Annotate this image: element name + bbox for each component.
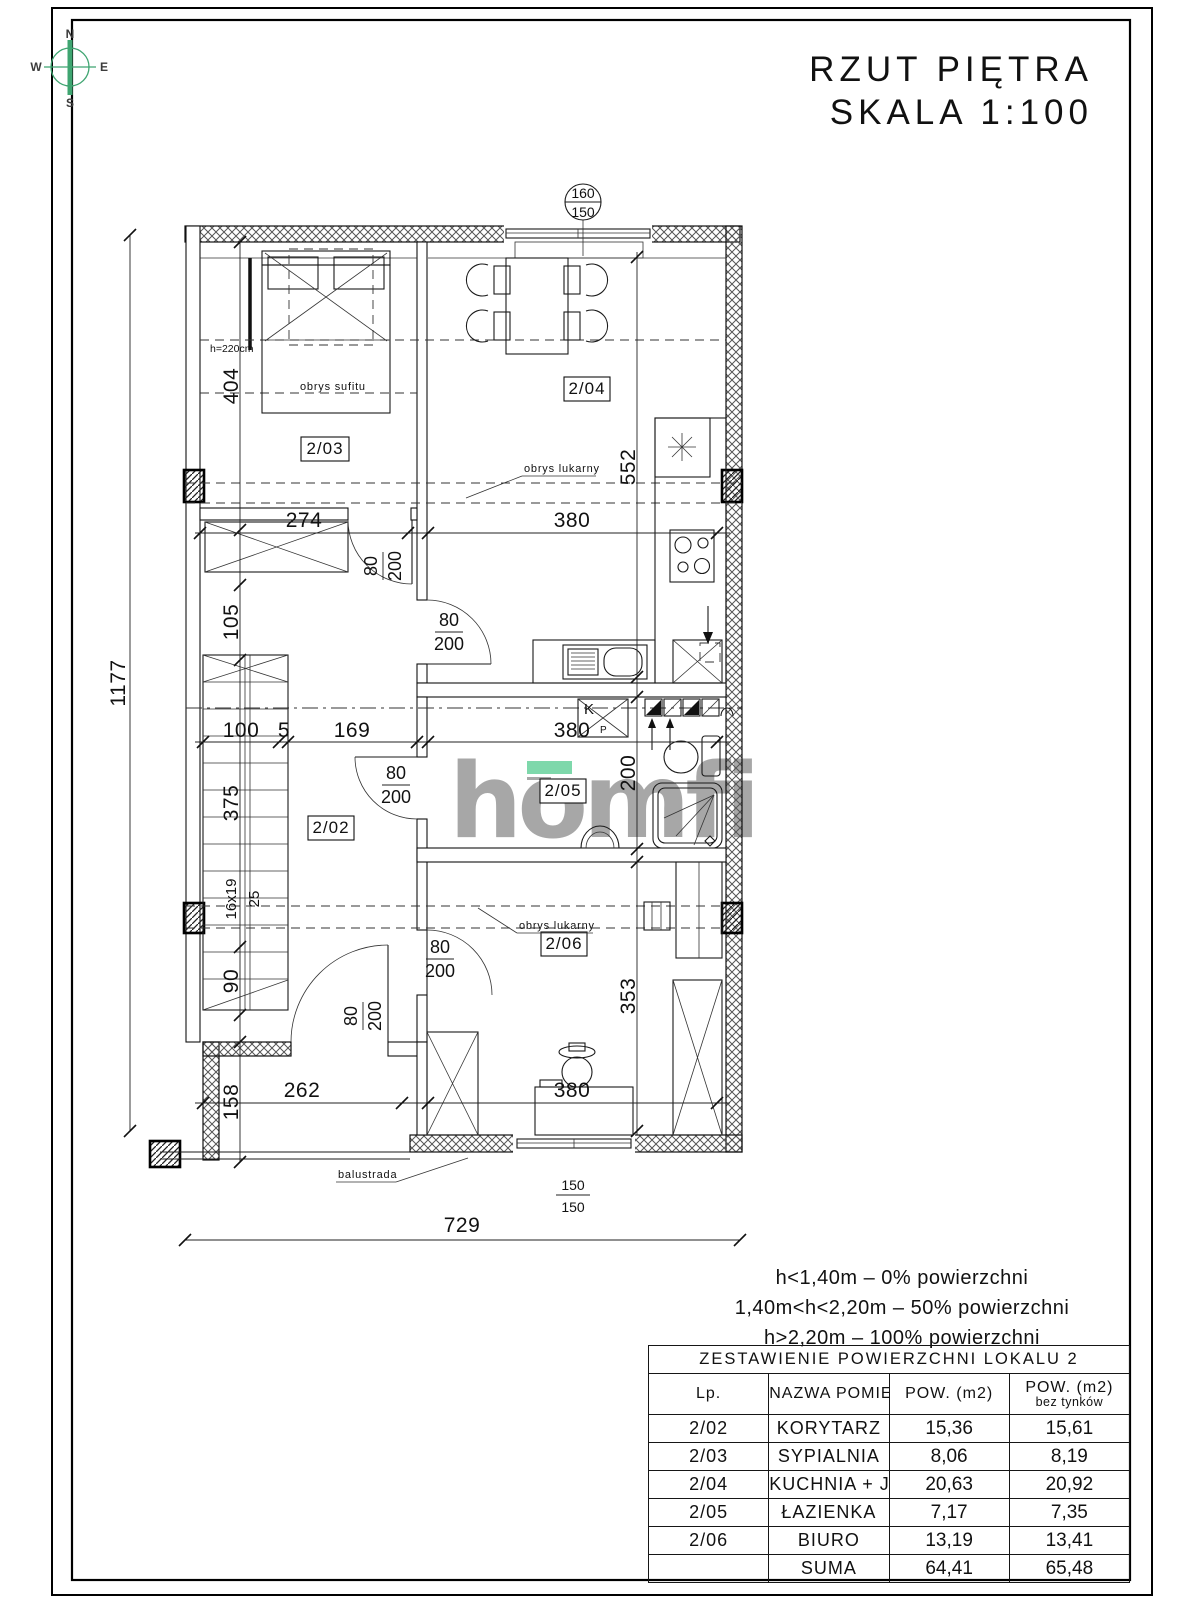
dim-404: 404 — [220, 368, 243, 405]
dim-262: 262 — [284, 1079, 321, 1102]
cooktop — [670, 530, 714, 582]
shaft-p-label: P — [600, 725, 607, 736]
office-wardrobe-left — [427, 1032, 478, 1135]
door-size-height: 200 — [365, 1001, 385, 1031]
dim-380-top: 380 — [554, 509, 591, 532]
drawing-title-line1: RZUT PIĘTRA — [809, 48, 1093, 91]
door-kitchen: 80 200 — [427, 600, 491, 664]
drawing-title: RZUT PIĘTRA SKALA 1:100 — [809, 48, 1093, 134]
table-row: 2/06 BIURO 13,19 13,41 — [649, 1527, 1130, 1555]
door-balcony: 80 200 — [291, 945, 388, 1042]
window-size-num: 160 — [571, 185, 595, 201]
cell-name: KORYTARZ — [769, 1415, 889, 1443]
height-rule-1: h<1,40m – 0% powierzchni — [690, 1263, 1114, 1293]
door-size-width: 80 — [341, 1006, 361, 1026]
dim-353: 353 — [617, 978, 640, 1015]
svg-text:obrys lukarny: obrys lukarny — [519, 920, 595, 932]
dim-169: 169 — [334, 719, 371, 742]
col-header-area: POW. (m2) — [889, 1374, 1009, 1415]
window-size-num: 150 — [561, 1177, 585, 1193]
note-balustrade: balustrada — [336, 1158, 468, 1182]
window-size-den: 150 — [571, 204, 595, 220]
area-table-title: ZESTAWIENIE POWIERZCHNI LOKALU 2 — [649, 1346, 1130, 1374]
dim-90: 90 — [220, 969, 243, 993]
area-table: ZESTAWIENIE POWIERZCHNI LOKALU 2 Lp. NAZ… — [648, 1345, 1130, 1583]
cell-name: KUCHNIA + JADANIA — [769, 1471, 889, 1499]
door-office: 80 200 — [425, 930, 492, 995]
stairs-note-2: 25 — [246, 891, 263, 908]
room-label-2-04: 2/04 — [564, 377, 610, 401]
office-wardrobe-right — [673, 980, 722, 1135]
col-header-area-net-line1: POW. (m2) — [1025, 1379, 1113, 1396]
svg-text:2/06: 2/06 — [545, 934, 582, 953]
doors: 80 200 80 200 80 200 — [291, 520, 492, 1042]
height-rules: h<1,40m – 0% powierzchni 1,40m<h<2,20m –… — [690, 1263, 1114, 1353]
interior-walls — [200, 242, 726, 1135]
note-obrys-sufitu: obrys sufitu — [300, 381, 366, 393]
cell-lp: 2/04 — [649, 1471, 769, 1499]
window-bottom — [513, 1133, 635, 1154]
cell-area-net: 15,61 — [1009, 1415, 1129, 1443]
office-shelf — [676, 862, 722, 958]
table-row: 2/05 ŁAZIENKA 7,17 7,35 — [649, 1499, 1130, 1527]
cell-area: 13,19 — [889, 1527, 1009, 1555]
svg-text:balustrada: balustrada — [338, 1169, 397, 1181]
knee-wall-lines — [200, 258, 726, 350]
window-size-den: 150 — [561, 1199, 585, 1215]
fridge — [673, 606, 722, 683]
cell-total-area: 64,41 — [889, 1555, 1009, 1583]
cell-name: SYPIALNIA — [769, 1443, 889, 1471]
window-top-size-bubble: 160 150 — [565, 184, 601, 256]
compass: N E S W — [30, 27, 108, 110]
door-bedroom: 80 200 — [348, 520, 412, 584]
svg-text:2/02: 2/02 — [312, 818, 349, 837]
compass-n-label: N — [66, 27, 75, 41]
col-header-lp: Lp. — [649, 1374, 769, 1415]
dim-380-bottom: 380 — [554, 1079, 591, 1102]
cell-area: 8,06 — [889, 1443, 1009, 1471]
door-bathroom: 80 200 — [355, 757, 417, 819]
door-size-height: 200 — [425, 961, 455, 981]
dim-375: 375 — [220, 785, 243, 822]
door-size-width: 80 — [439, 610, 459, 630]
dim-105: 105 — [220, 604, 243, 641]
cell-total-area-net: 65,48 — [1009, 1555, 1129, 1583]
dim-274: 274 — [286, 509, 323, 532]
cell-area-net: 13,41 — [1009, 1527, 1129, 1555]
door-size-width: 80 — [361, 556, 381, 576]
col-header-area-net-line2: bez tynków — [1010, 1395, 1129, 1409]
dim-200: 200 — [617, 755, 640, 792]
table-row: 2/04 KUCHNIA + JADANIA 20,63 20,92 — [649, 1471, 1130, 1499]
svg-text:2/03: 2/03 — [306, 439, 343, 458]
door-size-height: 200 — [434, 634, 464, 654]
cell-area-net: 7,35 — [1009, 1499, 1129, 1527]
cell-area-net: 20,92 — [1009, 1471, 1129, 1499]
cell-lp-empty — [649, 1555, 769, 1583]
cell-lp: 2/05 — [649, 1499, 769, 1527]
compass-s-label: S — [66, 96, 74, 110]
svg-text:obrys lukarny: obrys lukarny — [524, 463, 600, 475]
lamp-symbol — [668, 433, 696, 461]
dim-158: 158 — [220, 1084, 243, 1121]
compass-w-label: W — [30, 60, 42, 74]
balcony-balustrade — [160, 1152, 410, 1159]
cell-lp: 2/02 — [649, 1415, 769, 1443]
dim-380-mid: 380 — [554, 719, 591, 742]
window-top — [504, 224, 652, 258]
door-size-height: 200 — [385, 551, 405, 581]
dim-overall-height: 1177 — [107, 659, 130, 706]
table-row: 2/03 SYPIALNIA 8,06 8,19 — [649, 1443, 1130, 1471]
room-label-2-02: 2/02 — [308, 816, 354, 840]
door-size-height: 200 — [381, 787, 411, 807]
cell-lp: 2/06 — [649, 1527, 769, 1555]
dim-5: 5 — [278, 719, 290, 742]
room-label-2-05: 2/05 — [540, 779, 586, 803]
cell-total-label: SUMA — [769, 1555, 889, 1583]
compass-e-label: E — [100, 60, 108, 74]
room-label-2-06: 2/06 — [541, 932, 587, 956]
note-obrys-lukarny-top: obrys lukarny — [466, 463, 600, 498]
window-bottom-size: 150 150 — [556, 1177, 590, 1215]
cell-name: ŁAZIENKA — [769, 1499, 889, 1527]
cell-name: BIURO — [769, 1527, 889, 1555]
cell-lp: 2/03 — [649, 1443, 769, 1471]
cell-area-net: 8,19 — [1009, 1443, 1129, 1471]
col-header-area-net: POW. (m2) bez tynków — [1009, 1374, 1129, 1415]
floor-plan: 16x19 25 — [107, 184, 746, 1246]
corridor-wardrobe — [205, 522, 348, 572]
door-size-width: 80 — [430, 937, 450, 957]
drawing-title-line2: SKALA 1:100 — [809, 91, 1093, 134]
dim-overall-width: 729 — [444, 1214, 481, 1237]
cell-area: 20,63 — [889, 1471, 1009, 1499]
dim-100: 100 — [223, 719, 260, 742]
room-label-2-03: 2/03 — [301, 437, 349, 461]
table-total-row: SUMA 64,41 65,48 — [649, 1555, 1130, 1583]
shower — [653, 783, 722, 848]
stairs-note-1: 16x19 — [223, 879, 240, 920]
shaft-k-label: K — [584, 701, 594, 718]
svg-text:2/05: 2/05 — [544, 781, 581, 800]
note-obrys-lukarny-bottom: obrys lukarny — [478, 908, 595, 933]
drawing-sheet: homfi N E S W — [0, 0, 1200, 1600]
svg-text:2/04: 2/04 — [568, 379, 605, 398]
col-header-name: NAZWA POMIESZCZENIA — [769, 1374, 889, 1415]
dim-552: 552 — [617, 449, 640, 486]
note-height: h=220cm — [210, 343, 254, 355]
washbasin — [581, 826, 619, 848]
table-row: 2/02 KORYTARZ 15,36 15,61 — [649, 1415, 1130, 1443]
cell-area: 15,36 — [889, 1415, 1009, 1443]
door-size-width: 80 — [386, 763, 406, 783]
cell-area: 7,17 — [889, 1499, 1009, 1527]
height-rule-2: 1,40m<h<2,20m – 50% powierzchni — [690, 1293, 1114, 1323]
bathroom-fixtures: K P — [578, 699, 733, 848]
